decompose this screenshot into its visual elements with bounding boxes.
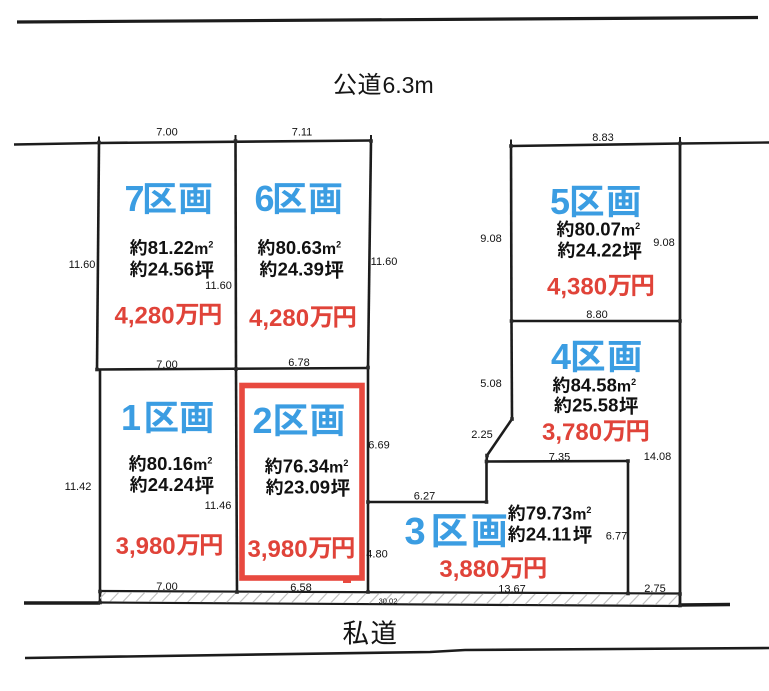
svg-text:3: 3 <box>405 511 426 553</box>
svg-text:13.67: 13.67 <box>498 584 526 596</box>
svg-text:84.58m2: 84.58m2 <box>571 375 637 396</box>
svg-text:6.77: 6.77 <box>606 531 627 543</box>
svg-text:79.73m2: 79.73m2 <box>526 503 592 524</box>
svg-text:4: 4 <box>551 336 571 377</box>
svg-text:24.56: 24.56 <box>148 259 194 280</box>
svg-text:9.08: 9.08 <box>480 233 501 245</box>
svg-text:7.00: 7.00 <box>156 127 177 139</box>
svg-text:6.3m: 6.3m <box>383 72 434 98</box>
svg-text:4,380: 4,380 <box>547 274 607 301</box>
svg-text:3,980: 3,980 <box>116 533 176 560</box>
svg-text:24.24: 24.24 <box>148 474 195 495</box>
svg-text:24.39: 24.39 <box>278 259 324 280</box>
svg-text:30.02: 30.02 <box>379 597 398 606</box>
svg-text:11.60: 11.60 <box>371 256 398 268</box>
svg-text:7.00: 7.00 <box>156 359 177 371</box>
svg-text:81.22m2: 81.22m2 <box>148 237 214 258</box>
svg-text:11.46: 11.46 <box>205 500 232 512</box>
svg-text:80.07m2: 80.07m2 <box>575 219 641 240</box>
svg-text:4,280: 4,280 <box>115 303 175 330</box>
svg-text:24.22: 24.22 <box>576 240 622 261</box>
svg-text:8.83: 8.83 <box>592 132 613 144</box>
svg-text:8.80: 8.80 <box>586 309 607 321</box>
svg-text:5: 5 <box>550 181 570 222</box>
svg-text:2.25: 2.25 <box>471 429 492 441</box>
svg-text:4,280: 4,280 <box>249 305 309 332</box>
svg-text:6.69: 6.69 <box>368 440 389 452</box>
svg-text:2: 2 <box>253 400 273 441</box>
svg-text:7.00: 7.00 <box>156 581 177 593</box>
svg-text:80.63m2: 80.63m2 <box>276 237 342 258</box>
svg-text:3,980: 3,980 <box>248 536 308 563</box>
svg-text:25.58: 25.58 <box>572 395 618 416</box>
svg-text:80.16m2: 80.16m2 <box>147 453 213 474</box>
svg-text:4.80: 4.80 <box>366 549 387 561</box>
svg-text:76.34m2: 76.34m2 <box>283 456 349 477</box>
svg-text:6.58: 6.58 <box>290 582 311 594</box>
svg-text:6.78: 6.78 <box>288 357 309 369</box>
svg-text:14.08: 14.08 <box>644 451 672 463</box>
svg-text:23.09: 23.09 <box>284 477 330 498</box>
svg-text:11.60: 11.60 <box>69 259 96 271</box>
svg-text:24.11: 24.11 <box>526 524 571 545</box>
svg-text:7.11: 7.11 <box>292 127 313 139</box>
svg-text:7: 7 <box>125 178 145 219</box>
svg-text:9.08: 9.08 <box>653 237 674 249</box>
svg-text:6: 6 <box>255 178 275 219</box>
svg-text:3,880: 3,880 <box>439 556 499 583</box>
svg-text:7.35: 7.35 <box>549 452 570 464</box>
svg-text:6.27: 6.27 <box>414 491 435 503</box>
svg-text:2.75: 2.75 <box>644 583 665 595</box>
svg-text:3,780: 3,780 <box>542 419 602 446</box>
svg-text:5.08: 5.08 <box>480 378 501 390</box>
svg-text:11.42: 11.42 <box>65 481 92 493</box>
svg-text:11.60: 11.60 <box>205 280 232 292</box>
svg-text:1: 1 <box>121 397 141 438</box>
